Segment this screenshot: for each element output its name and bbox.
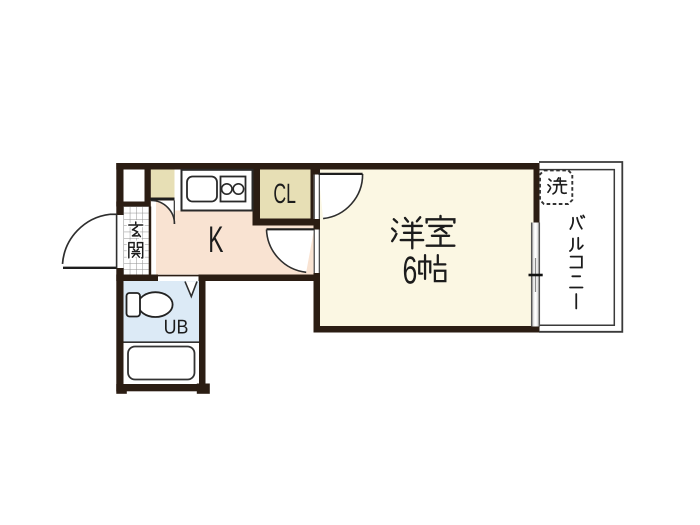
svg-text:K: K — [208, 219, 223, 260]
svg-text:6: 6 — [403, 249, 418, 292]
svg-text:UB: UB — [164, 317, 189, 339]
svg-text:CL: CL — [273, 178, 296, 209]
